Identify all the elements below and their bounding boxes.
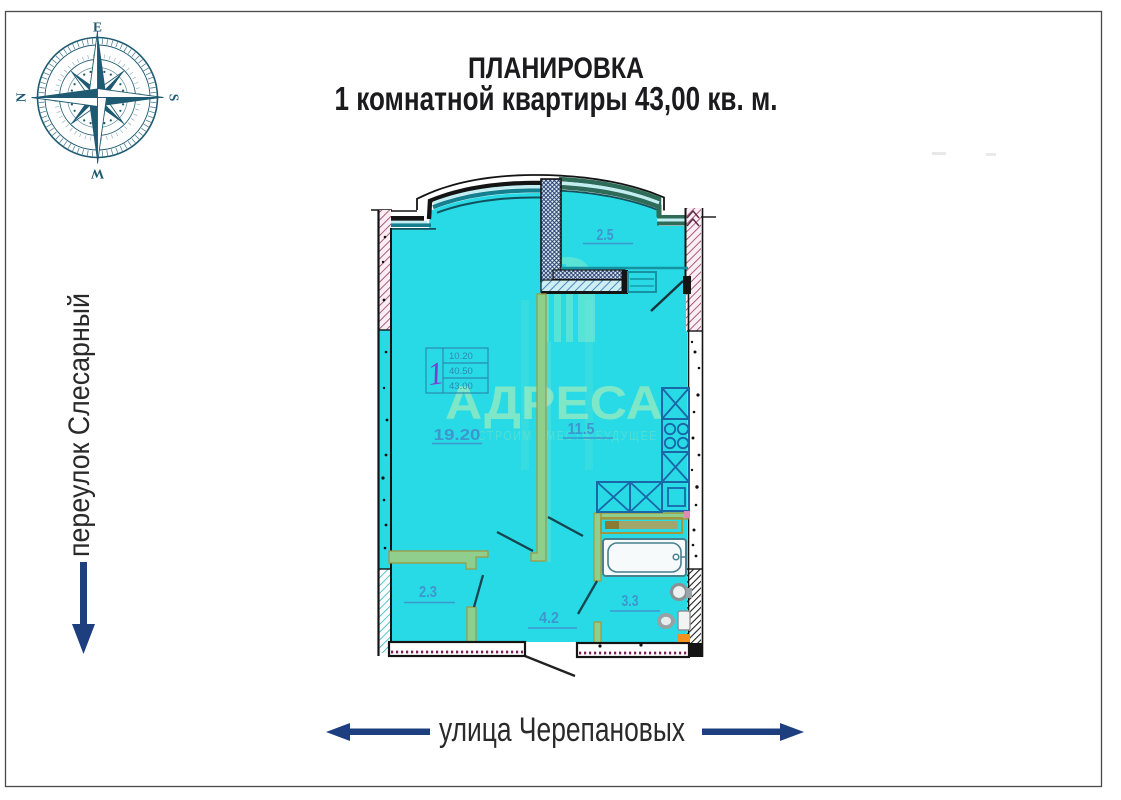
svg-text:1 комнатной квартиры 43,00 кв.: 1 комнатной квартиры 43,00 кв. м. (335, 80, 778, 117)
svg-text:40.50: 40.50 (449, 366, 473, 377)
svg-text:W: W (90, 167, 104, 182)
svg-text:улица Черепановых: улица Черепановых (439, 711, 685, 749)
svg-text:4.2: 4.2 (539, 610, 559, 627)
svg-text:2.3: 2.3 (419, 584, 437, 601)
svg-text:19.20: 19.20 (434, 427, 481, 444)
svg-text:переулок Слесарный: переулок Слесарный (63, 293, 96, 557)
svg-text:3.3: 3.3 (622, 593, 639, 610)
svg-text:10.20: 10.20 (449, 351, 473, 362)
svg-text:43.00: 43.00 (449, 381, 473, 392)
svg-text:АДРЕСА: АДРЕСА (445, 376, 663, 429)
svg-text:N: N (14, 92, 29, 102)
svg-text:E: E (93, 20, 102, 35)
svg-text:S: S (167, 94, 182, 102)
svg-text:2.5: 2.5 (597, 227, 614, 244)
svg-text:11.5: 11.5 (568, 421, 595, 438)
